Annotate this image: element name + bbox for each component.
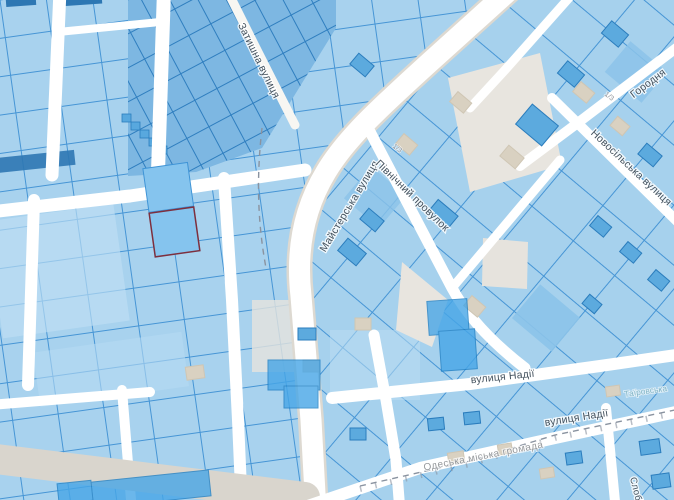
building bbox=[427, 417, 444, 431]
road-left-vertical-1 bbox=[52, 0, 60, 175]
building-footprint bbox=[605, 385, 620, 397]
parcel-highlighted[interactable] bbox=[143, 162, 194, 212]
building bbox=[565, 451, 583, 465]
building bbox=[639, 439, 661, 456]
building-footprint bbox=[355, 318, 371, 330]
building bbox=[298, 328, 316, 340]
highlight-building bbox=[57, 480, 93, 500]
building bbox=[463, 411, 480, 425]
parcel-light-patch[interactable] bbox=[0, 204, 130, 339]
selected-parcel[interactable] bbox=[149, 207, 200, 257]
building-footprint bbox=[539, 467, 554, 479]
road-left-vertical-3 bbox=[28, 200, 34, 385]
highlight-building bbox=[284, 386, 318, 408]
map-canvas[interactable]: Затишна вулиця Майстерська вулиця Північ… bbox=[0, 0, 674, 500]
building-footprint bbox=[185, 365, 205, 380]
highlight-building bbox=[439, 329, 478, 371]
map-viewport[interactable]: Затишна вулиця Майстерська вулиця Північ… bbox=[0, 0, 674, 500]
building bbox=[651, 473, 671, 489]
building bbox=[350, 428, 366, 440]
